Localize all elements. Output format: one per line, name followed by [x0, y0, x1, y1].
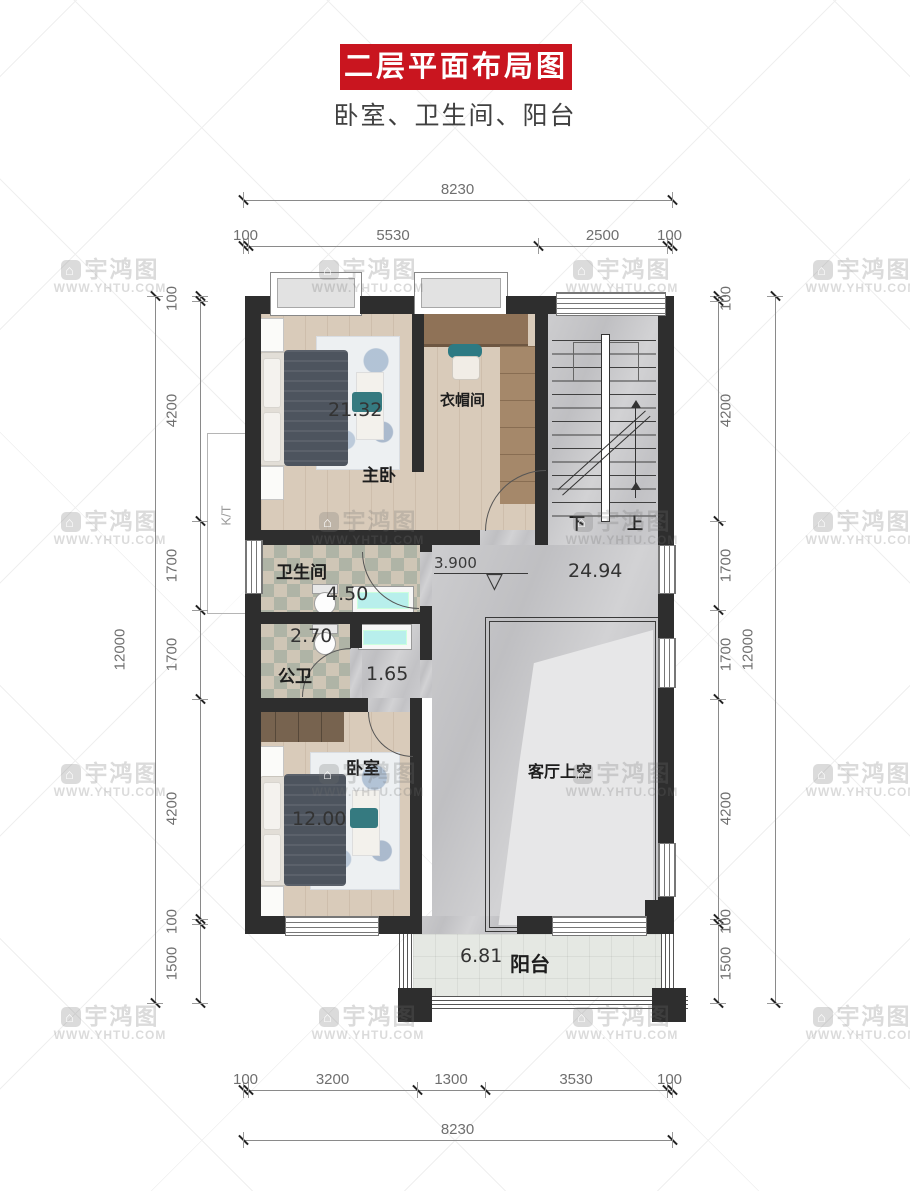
- watermark-brand: 宇鸿图: [597, 256, 672, 282]
- window-pane: [277, 278, 355, 308]
- dim-extension: [192, 1003, 208, 1004]
- window: [658, 843, 676, 897]
- floor-doorway: [368, 698, 410, 712]
- dim-extension: [710, 699, 726, 700]
- watermark-brand: 宇鸿图: [837, 256, 910, 282]
- brand-logo-icon: [61, 260, 81, 280]
- stairs-up-label: 上: [627, 510, 643, 534]
- dim-label: 100: [630, 1071, 710, 1088]
- brand-logo-icon: [813, 1007, 833, 1027]
- dim-label: 1300: [411, 1071, 491, 1088]
- dim-extension: [672, 192, 673, 208]
- watermark-url: WWW.YHTU.COM: [15, 1028, 205, 1043]
- column: [652, 988, 686, 1022]
- dim-label: 12000: [740, 609, 757, 689]
- chair-seat: [452, 356, 480, 380]
- watermark: 宇鸿图WWW.YHTU.COM: [273, 1004, 463, 1043]
- watermark-brand: 宇鸿图: [837, 1003, 910, 1029]
- dim-label: 12000: [112, 609, 129, 689]
- dim-extension: [538, 238, 539, 254]
- dim-extension: [710, 610, 726, 611]
- wall-segment: [245, 592, 261, 934]
- watermark-url: WWW.YHTU.COM: [767, 785, 910, 800]
- watermark-brand: 宇鸿图: [85, 508, 160, 534]
- wall-segment: [658, 686, 674, 843]
- dim-label: 100: [630, 227, 710, 244]
- window: [552, 916, 647, 936]
- wall-segment: [245, 612, 432, 624]
- teal-throw: [350, 808, 378, 828]
- wall-segment: [517, 916, 552, 934]
- watermark-brand: 宇鸿图: [837, 760, 910, 786]
- floor-doorway: [480, 530, 535, 545]
- label-cloakroom: 衣帽间: [440, 389, 485, 410]
- dim-extension: [192, 301, 208, 302]
- dim-label: 100: [718, 258, 735, 338]
- dim-label: 4200: [718, 769, 735, 849]
- watermark-url: WWW.YHTU.COM: [527, 1028, 717, 1043]
- pillow: [263, 358, 281, 408]
- floor-plan-page: 二层平面布局图 卧室、卫生间、阳台: [0, 0, 910, 1191]
- watermark: 宇鸿图WWW.YHTU.COM: [15, 1004, 205, 1043]
- watermark: 宇鸿图WWW.YHTU.COM: [767, 257, 910, 296]
- dim-line: [775, 296, 776, 1003]
- stair-window: [556, 292, 666, 316]
- dim-extension: [192, 699, 208, 700]
- dim-label: 4200: [718, 371, 735, 451]
- dim-extension: [243, 192, 244, 208]
- wall-segment: [658, 296, 674, 545]
- dim-label: 3530: [536, 1071, 616, 1088]
- wall-segment: [420, 606, 432, 660]
- pillow: [263, 412, 281, 462]
- brand-logo-icon: [61, 1007, 81, 1027]
- dim-extension: [192, 610, 208, 611]
- floor-doorway: [420, 552, 432, 606]
- page-title-banner: 二层平面布局图: [340, 44, 572, 90]
- watermark-brand: 宇鸿图: [85, 1003, 160, 1029]
- area-bedroom: 12.00: [292, 808, 346, 830]
- stair-arrow-icon: [631, 400, 641, 408]
- watermark-brand: 宇鸿图: [85, 760, 160, 786]
- sink-basin: [363, 630, 407, 645]
- bay-window: [414, 272, 508, 316]
- dim-extension: [192, 521, 208, 522]
- floor-doorway: [350, 648, 362, 698]
- wall-segment: [245, 698, 368, 712]
- watermark: 宇鸿图WWW.YHTU.COM: [767, 761, 910, 800]
- label-living-void: 客厅上空: [528, 758, 592, 782]
- dim-label: 4200: [164, 371, 181, 451]
- dim-label: 3200: [293, 1071, 373, 1088]
- dim-label: 8230: [418, 1121, 498, 1138]
- dim-label: 1700: [718, 525, 735, 605]
- wall-segment: [420, 545, 432, 552]
- watermark: 宇鸿图WWW.YHTU.COM: [767, 1004, 910, 1043]
- page-subtitle: 卧室、卫生间、阳台: [255, 96, 655, 132]
- wall-segment: [245, 916, 285, 934]
- window: [658, 545, 676, 594]
- wall-segment: [658, 592, 674, 638]
- watermark-brand: 宇鸿图: [85, 256, 160, 282]
- dim-extension: [147, 296, 163, 297]
- dim-line: [243, 200, 672, 201]
- watermark: 宇鸿图WWW.YHTU.COM: [527, 257, 717, 296]
- stairs-down-label: 下: [569, 510, 585, 534]
- cloakroom-cabinet: [424, 314, 528, 347]
- dim-label: 1500: [164, 923, 181, 1003]
- label-balcony: 阳台: [510, 948, 550, 977]
- dim-label: 1700: [164, 614, 181, 694]
- brand-logo-icon: [813, 260, 833, 280]
- floor-doorway: [420, 660, 432, 698]
- area-bathroom: 4.50: [326, 583, 368, 605]
- dim-label: 1700: [718, 614, 735, 694]
- bed-blanket: [284, 774, 346, 886]
- sink-icon: [358, 624, 412, 650]
- watermark: 宇鸿图WWW.YHTU.COM: [767, 509, 910, 548]
- brand-logo-icon: [61, 764, 81, 784]
- brand-logo-icon: [813, 512, 833, 532]
- wall-partition: [412, 314, 424, 472]
- wall-segment: [360, 296, 414, 314]
- dim-extension: [767, 1003, 783, 1004]
- dim-label: 4200: [164, 769, 181, 849]
- wall-partition: [350, 624, 362, 648]
- area-hall: 24.94: [568, 560, 622, 582]
- watermark-url: WWW.YHTU.COM: [767, 1028, 910, 1043]
- dim-label: 100: [206, 227, 286, 244]
- wall-segment: [261, 530, 480, 545]
- watermark-url: WWW.YHTU.COM: [767, 281, 910, 296]
- area-master-bedroom: 21.32: [328, 399, 382, 421]
- window: [245, 540, 263, 594]
- wall-segment: [506, 296, 556, 314]
- wall-segment: [377, 916, 412, 934]
- dim-label: 1500: [718, 923, 735, 1003]
- ac-platform-label: K/T: [219, 501, 234, 531]
- dim-extension: [672, 1132, 673, 1148]
- dim-extension: [767, 296, 783, 297]
- stair-arrow-icon: [631, 482, 641, 490]
- watermark-url: WWW.YHTU.COM: [767, 533, 910, 548]
- brand-logo-icon: [319, 1007, 339, 1027]
- label-public-bathroom: 公卫: [278, 662, 312, 687]
- window: [285, 916, 379, 936]
- balcony-railing: [661, 934, 675, 996]
- dim-extension: [192, 924, 208, 925]
- dim-extension: [710, 521, 726, 522]
- dim-line: [243, 1090, 672, 1091]
- watermark: 宇鸿图WWW.YHTU.COM: [527, 1004, 717, 1043]
- label-bedroom: 卧室: [346, 754, 380, 779]
- watermark-brand: 宇鸿图: [837, 508, 910, 534]
- brand-logo-icon: [573, 260, 593, 280]
- area-public-bathroom: 2.70: [290, 625, 332, 647]
- balcony-railing: [399, 996, 688, 1009]
- bay-window: [270, 272, 362, 316]
- elevation-value: 3.900: [434, 554, 477, 572]
- dim-line: [243, 1140, 672, 1141]
- balcony-railing: [399, 934, 413, 996]
- dim-label: 1700: [164, 525, 181, 605]
- pillow: [263, 834, 281, 882]
- dim-extension: [243, 1132, 244, 1148]
- brand-logo-icon: [573, 1007, 593, 1027]
- watermark-url: WWW.YHTU.COM: [273, 1028, 463, 1043]
- elevation-marker-icon: ▽: [486, 570, 503, 592]
- stair-handrail: [601, 334, 610, 522]
- dim-label: 5530: [353, 227, 433, 244]
- dim-line: [243, 246, 672, 247]
- dim-label: 100: [164, 258, 181, 338]
- label-master-bedroom: 主卧: [362, 461, 396, 486]
- dim-label: 8230: [418, 181, 498, 198]
- column: [398, 988, 432, 1022]
- brand-logo-icon: [61, 512, 81, 532]
- wall-segment: [645, 900, 674, 934]
- wall-segment: [245, 296, 261, 540]
- area-balcony: 6.81: [460, 945, 502, 967]
- dim-extension: [147, 1003, 163, 1004]
- dim-label: 100: [206, 1071, 286, 1088]
- window: [658, 638, 676, 688]
- area-wash: 1.65: [366, 663, 408, 685]
- pillow: [263, 782, 281, 830]
- window-pane: [421, 278, 501, 308]
- brand-logo-icon: [813, 764, 833, 784]
- label-bathroom: 卫生间: [276, 558, 327, 583]
- dim-line: [200, 296, 201, 1003]
- dim-line: [155, 296, 156, 1003]
